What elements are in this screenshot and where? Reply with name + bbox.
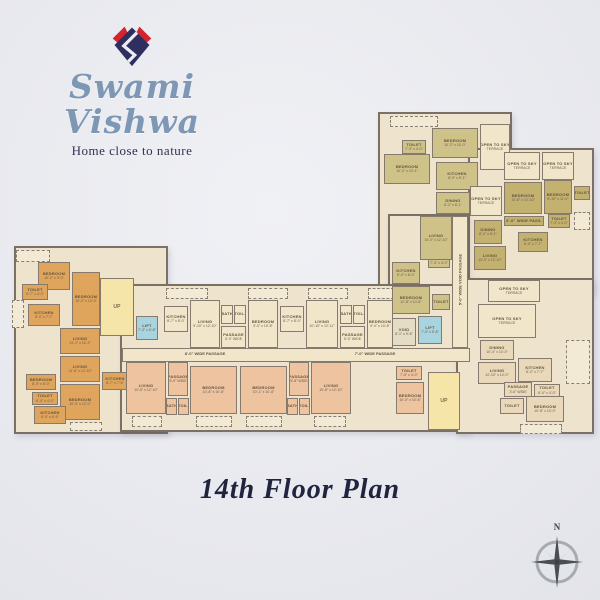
room-dimensions: TERRACE — [514, 166, 531, 170]
room-dimensions: 11'-8" x 10'-8" — [400, 300, 421, 304]
balcony — [308, 288, 348, 299]
room-open-to-sky: OPEN TO SKYTERRACE — [504, 152, 540, 180]
room-label: TOIL. — [178, 404, 189, 409]
room-3-0-wide-pass: 3'-0" WIDE PASS. — [504, 216, 544, 226]
room-bedroom: BEDROOM10'-8" x 10'-8" — [190, 366, 237, 414]
room-toilet: TOILET6'-7" x 4'-0" — [22, 284, 48, 300]
room-dimensions: 8'-0" x 6'-6" — [41, 415, 59, 419]
balcony — [246, 416, 282, 427]
room-living: LIVING9'-10" x 12'-10" — [190, 300, 220, 348]
room-bedroom: BEDROOM9'-0" x 10'-8" — [248, 300, 278, 348]
room-open-to-sky: OPEN TO SKYTERRACE — [478, 304, 536, 338]
room-dimensions: 10'-0" x 10'-6" — [399, 398, 421, 402]
room-toil: TOIL. — [178, 398, 189, 415]
room-dimensions: 13'-8" x 12'-10" — [68, 369, 91, 373]
room-label: TOILET — [504, 404, 519, 409]
room-dimensions: 8'-0" x 7'-7" — [35, 315, 53, 319]
room-passage: PASSAGE5'-0" WIDE — [221, 326, 246, 348]
room-bath: BATH — [287, 398, 298, 415]
room-dimensions: 7'-3" x 5'-8" — [421, 330, 439, 334]
room-toil: TOIL. — [353, 305, 365, 324]
room-dining: DINING8'-2" x 8'-1" — [474, 220, 502, 244]
room-dimensions: 8'-7" x 8'-0" — [167, 319, 185, 323]
room-open-to-sky: OPEN TO SKYTERRACE — [470, 186, 502, 216]
room-kitchen: KITCHEN8'-7" x 8'-0" — [164, 306, 188, 332]
room-bath: BATH — [166, 398, 177, 415]
room-dimensions: 10'-0" x 12'-10" — [478, 258, 501, 262]
room-bath: BATH — [221, 305, 233, 324]
room-bedroom: BEDROOM10'-8" x 10'-0" — [526, 396, 564, 422]
room-bedroom: BEDROOM8'-10" x 11'-0" — [544, 180, 572, 214]
room-living: LIVING10'-10" x 10'-0" — [478, 362, 516, 384]
room-dimensions: 7'-3" x 4'-0" — [405, 147, 423, 151]
balcony — [390, 116, 438, 127]
room-label: TOILET — [574, 191, 589, 196]
room-dimensions: 8'-10" x 11'-0" — [547, 197, 568, 201]
room-bedroom: BEDROOM10'-8" x 10'-10" — [504, 182, 542, 214]
balcony — [196, 416, 232, 427]
room-dimensions: 8'-1" x 9'-8" — [395, 332, 413, 336]
floor-plan: BEDROOM10'-2" x 9'-0"BEDROOM10'-2" x 13'… — [0, 0, 600, 600]
room-dimensions: 6'-0" x 4'-0" — [36, 399, 54, 403]
room-dimensions: 7'-3" x 4'-0" — [430, 261, 448, 265]
balcony — [248, 288, 288, 299]
balcony — [314, 416, 346, 427]
room-bedroom: BEDROOM10'-1" x 10'-8" — [240, 366, 287, 414]
room-passage: PASSAGE5'-8" WIDE — [289, 362, 309, 396]
room-label: 3'-0" WIDE PASS. — [506, 219, 542, 224]
room-toilet: TOILET — [574, 186, 590, 200]
room-dimensions: 8'-2" x 8'-1" — [444, 203, 462, 207]
room-dimensions: TERRACE — [478, 201, 495, 205]
room-label: BATH — [340, 312, 352, 317]
room-toilet: TOILET — [500, 398, 524, 414]
floor-plan-title: 14th Floor Plan — [0, 474, 600, 506]
room-passage: PASSAGE5'-0" WIDE — [168, 362, 188, 396]
room-label: BATH — [221, 312, 233, 317]
room-kitchen: KITCHEN8'-0" x 6'-6" — [34, 406, 66, 424]
room-toilet: TOILET7'-5" x 4'-0" — [396, 366, 422, 380]
room-toilet: TOILET6'-0" x 4'-0" — [32, 392, 58, 405]
room-dimensions: 3'-6" WIDE — [509, 390, 526, 394]
room-bedroom: BEDROOM10'-2" x 10'-0" — [432, 128, 478, 158]
room-dimensions: 10'-2" x 10'-0" — [444, 143, 466, 147]
room-living: LIVING13'-1" x 16'-2" — [60, 328, 100, 354]
room-toilet: TOILET7'-3" x 4'-0" — [402, 140, 426, 154]
room-up: UP — [428, 372, 460, 430]
room-dimensions: TERRACE — [487, 147, 504, 151]
room-living: LIVING10'-8" x 12'-10" — [311, 362, 351, 414]
room-dimensions: 10'-8" x 10'-0" — [534, 409, 556, 413]
balcony — [12, 300, 24, 328]
room-label: UP — [112, 304, 121, 310]
room-dimensions: 9'-0" x 10'-8" — [370, 324, 390, 328]
room-label: TOIL. — [299, 404, 310, 409]
room-dimensions: 10'-8" x 10'-8" — [203, 390, 225, 394]
brochure-page: Swami Vishwa Home close to nature BEDROO… — [0, 0, 600, 600]
room-toil: TOIL. — [299, 398, 310, 415]
room-dimensions: 8'-0" x 8'-0" — [397, 273, 415, 277]
balcony — [166, 288, 208, 299]
room-passage: PASSAGE5'-0" WIDE — [340, 326, 365, 348]
balcony — [520, 424, 562, 434]
room-dimensions: 5'-0" WIDE — [169, 379, 186, 383]
room-toilet: TOILET — [432, 294, 450, 310]
room-dimensions: 10'-0" x 12'-10" — [424, 238, 447, 242]
room-dimensions: 8'-0" x 7'-7" — [524, 242, 542, 246]
room-dimensions: TERRACE — [499, 321, 516, 325]
room-toil: TOIL. — [234, 305, 246, 324]
room-dimensions: TERRACE — [506, 291, 523, 295]
room-dimensions: 6'-7" x 4'-0" — [26, 292, 44, 296]
room-dimensions: 9'-0" x 10'-8" — [253, 324, 273, 328]
room-dimensions: 10'-10" x 10'-0" — [485, 373, 508, 377]
room-dimensions: 7'-5" x 4'-0" — [400, 373, 418, 377]
room-dimensions: 10'-8" x 12'-10" — [134, 388, 157, 392]
room-label: BATH — [166, 404, 177, 409]
room-label: UP — [439, 398, 448, 404]
room-dimensions: 10'-8" x 12'-10" — [319, 388, 342, 392]
room-kitchen: KITCHEN8'-7" x 7'-5" — [102, 372, 128, 390]
room-bedroom: BEDROOM9'-0" x 10'-8" — [367, 300, 393, 348]
room-living: LIVING13'-8" x 12'-10" — [60, 356, 100, 382]
room-kitchen: KITCHEN8'-2" x 7'-7" — [518, 358, 552, 382]
room-open-to-sky: OPEN TO SKYTERRACE — [488, 280, 540, 302]
room-label: TOILET — [433, 300, 448, 305]
room-living: LIVING10'-10" x 12'-11" — [306, 300, 338, 348]
room-toilet: TOILET7'-3" x 4'-0" — [548, 214, 570, 228]
room-kitchen: KITCHEN8'-7" x 8'-0" — [280, 306, 304, 332]
room-dimensions: 6'-0" x 4'-0" — [538, 391, 556, 395]
room-living: LIVING10'-0" x 12'-10" — [474, 246, 506, 270]
room-label: BATH — [287, 404, 298, 409]
room-dimensions: 10'-1" x 10'-8" — [253, 390, 275, 394]
room-dimensions: 5'-0" WIDE — [344, 337, 361, 341]
room-kitchen: KITCHEN8'-0" x 8'-0" — [392, 262, 420, 284]
room-dimensions: 8'-2" x 7'-7" — [526, 370, 544, 374]
passage-label: 7'-0" WIDE PASSAGE — [320, 351, 430, 356]
room-bedroom: BEDROOM10'-2" x 13'-0" — [72, 272, 100, 326]
room-bedroom: BEDROOM11'-8" x 10'-8" — [392, 286, 430, 314]
room-bedroom: BEDROOM8'-0" x 8'-0" — [26, 374, 56, 390]
room-void: VOID8'-1" x 9'-8" — [392, 318, 416, 346]
room-dimensions: 5'-0" WIDE — [225, 337, 242, 341]
passage-label: 8'-0" WIDE PASSAGE — [150, 351, 260, 356]
room-living: LIVING10'-0" x 12'-10" — [420, 216, 452, 260]
room-dimensions: 10'-2" x 10'-1" — [396, 169, 418, 173]
room-open-to-sky: OPEN TO SKYTERRACE — [542, 152, 574, 180]
room-bedroom: BEDROOM10'-9" x 12'-0" — [60, 384, 100, 420]
compass-rose-icon: N — [526, 518, 588, 592]
room-dimensions: 7'-3" x 5'-8" — [138, 328, 156, 332]
balcony — [70, 422, 102, 431]
passage-label: 5'-0" WIDE VOID PASSAGE — [458, 232, 463, 328]
room-dimensions: TERRACE — [550, 166, 567, 170]
room-dining: DINING8'-2" x 8'-1" — [436, 192, 470, 214]
room-up: UP — [100, 278, 134, 336]
room-dimensions: 10'-4" x 10'-0" — [486, 350, 508, 354]
compass-north-label: N — [554, 522, 561, 532]
room-dimensions: 10'-2" x 9'-0" — [44, 276, 64, 280]
room-bedroom: BEDROOM10'-0" x 10'-6" — [396, 382, 424, 414]
balcony — [368, 288, 394, 299]
balcony — [16, 250, 50, 262]
room-dimensions: 10'-8" x 10'-10" — [511, 198, 534, 202]
room-label: TOIL. — [353, 312, 364, 317]
room-lift: LIFT7'-3" x 5'-8" — [136, 316, 158, 340]
room-dining: DINING10'-4" x 10'-0" — [480, 340, 514, 360]
room-dimensions: 7'-3" x 4'-0" — [550, 221, 568, 225]
room-dimensions: 10'-2" x 13'-0" — [75, 299, 97, 303]
room-lift: LIFT7'-3" x 5'-8" — [418, 316, 442, 344]
room-dimensions: 10'-9" x 12'-0" — [69, 402, 91, 406]
room-kitchen: KITCHEN8'-0" x 7'-7" — [518, 232, 548, 252]
balcony — [566, 340, 590, 384]
room-bath: BATH — [340, 305, 352, 324]
room-dimensions: 10'-10" x 12'-11" — [309, 324, 334, 328]
balcony — [574, 212, 590, 230]
room-bedroom: BEDROOM10'-2" x 10'-1" — [384, 154, 430, 184]
room-dimensions: 8'-2" x 8'-1" — [479, 232, 497, 236]
room-dimensions: 5'-8" WIDE — [290, 379, 307, 383]
room-dimensions: 13'-1" x 16'-2" — [69, 341, 91, 345]
room-dimensions: 8'-0" x 8'-0" — [32, 382, 50, 386]
room-dimensions: 8'-7" x 7'-5" — [106, 381, 124, 385]
room-dimensions: 8'-7" x 8'-0" — [283, 319, 301, 323]
room-label: TOIL. — [234, 312, 245, 317]
room-passage: PASSAGE3'-6" WIDE — [504, 382, 532, 397]
balcony — [132, 416, 162, 427]
room-kitchen: KITCHEN8'-0" x 7'-7" — [28, 304, 60, 326]
room-dimensions: 9'-10" x 12'-10" — [193, 324, 216, 328]
room-living: LIVING10'-8" x 12'-10" — [126, 362, 166, 414]
room-dimensions: 8'-0" x 8'-1" — [448, 176, 466, 180]
